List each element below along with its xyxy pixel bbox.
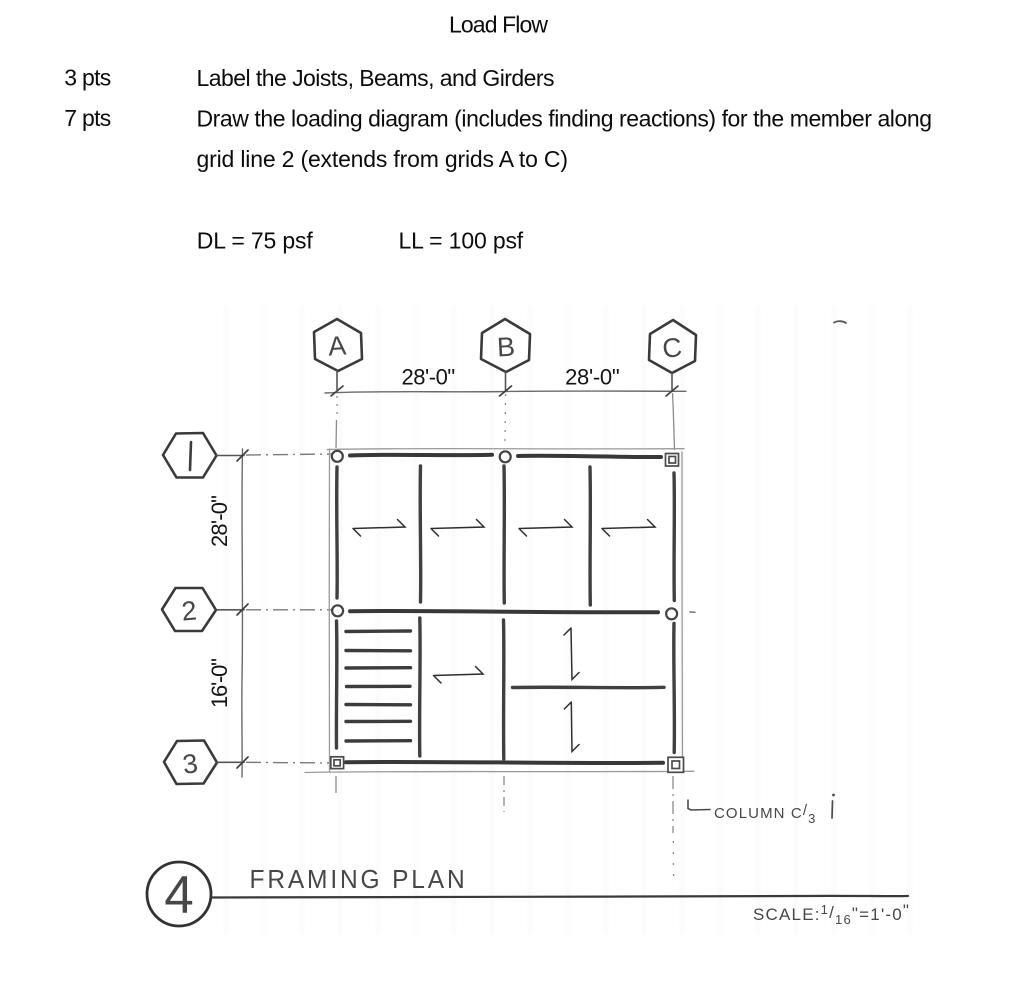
svg-text:28'-0": 28'-0" bbox=[402, 365, 456, 390]
svg-text:3 pts: 3 pts bbox=[64, 65, 111, 91]
svg-text:3: 3 bbox=[181, 748, 200, 780]
svg-text:28'-0": 28'-0" bbox=[207, 495, 232, 547]
svg-text:grid line 2 (extends from grid: grid line 2 (extends from grids A to C) bbox=[197, 146, 569, 172]
svg-text:COLUMN C/3: COLUMN C/3 bbox=[714, 802, 816, 826]
svg-text:C: C bbox=[661, 332, 684, 364]
svg-text:16'-0": 16'-0" bbox=[207, 658, 232, 708]
svg-text:28'-0": 28'-0" bbox=[565, 365, 620, 390]
svg-text:Label the Joists, Beams, and G: Label the Joists, Beams, and Girders bbox=[197, 65, 555, 91]
svg-text:DL = 75 psf: DL = 75 psf bbox=[197, 227, 314, 253]
svg-text:A: A bbox=[327, 330, 347, 361]
svg-text:Load Flow: Load Flow bbox=[449, 11, 548, 37]
svg-text:Draw the loading diagram (incl: Draw the loading diagram (includes findi… bbox=[197, 105, 933, 131]
svg-text:LL = 100 psf: LL = 100 psf bbox=[399, 227, 524, 253]
svg-text:B: B bbox=[496, 332, 516, 363]
svg-text:4: 4 bbox=[164, 866, 193, 925]
svg-text:FRAMING PLAN: FRAMING PLAN bbox=[250, 864, 468, 894]
svg-text:2: 2 bbox=[180, 595, 198, 626]
svg-text:7 pts: 7 pts bbox=[64, 105, 111, 131]
